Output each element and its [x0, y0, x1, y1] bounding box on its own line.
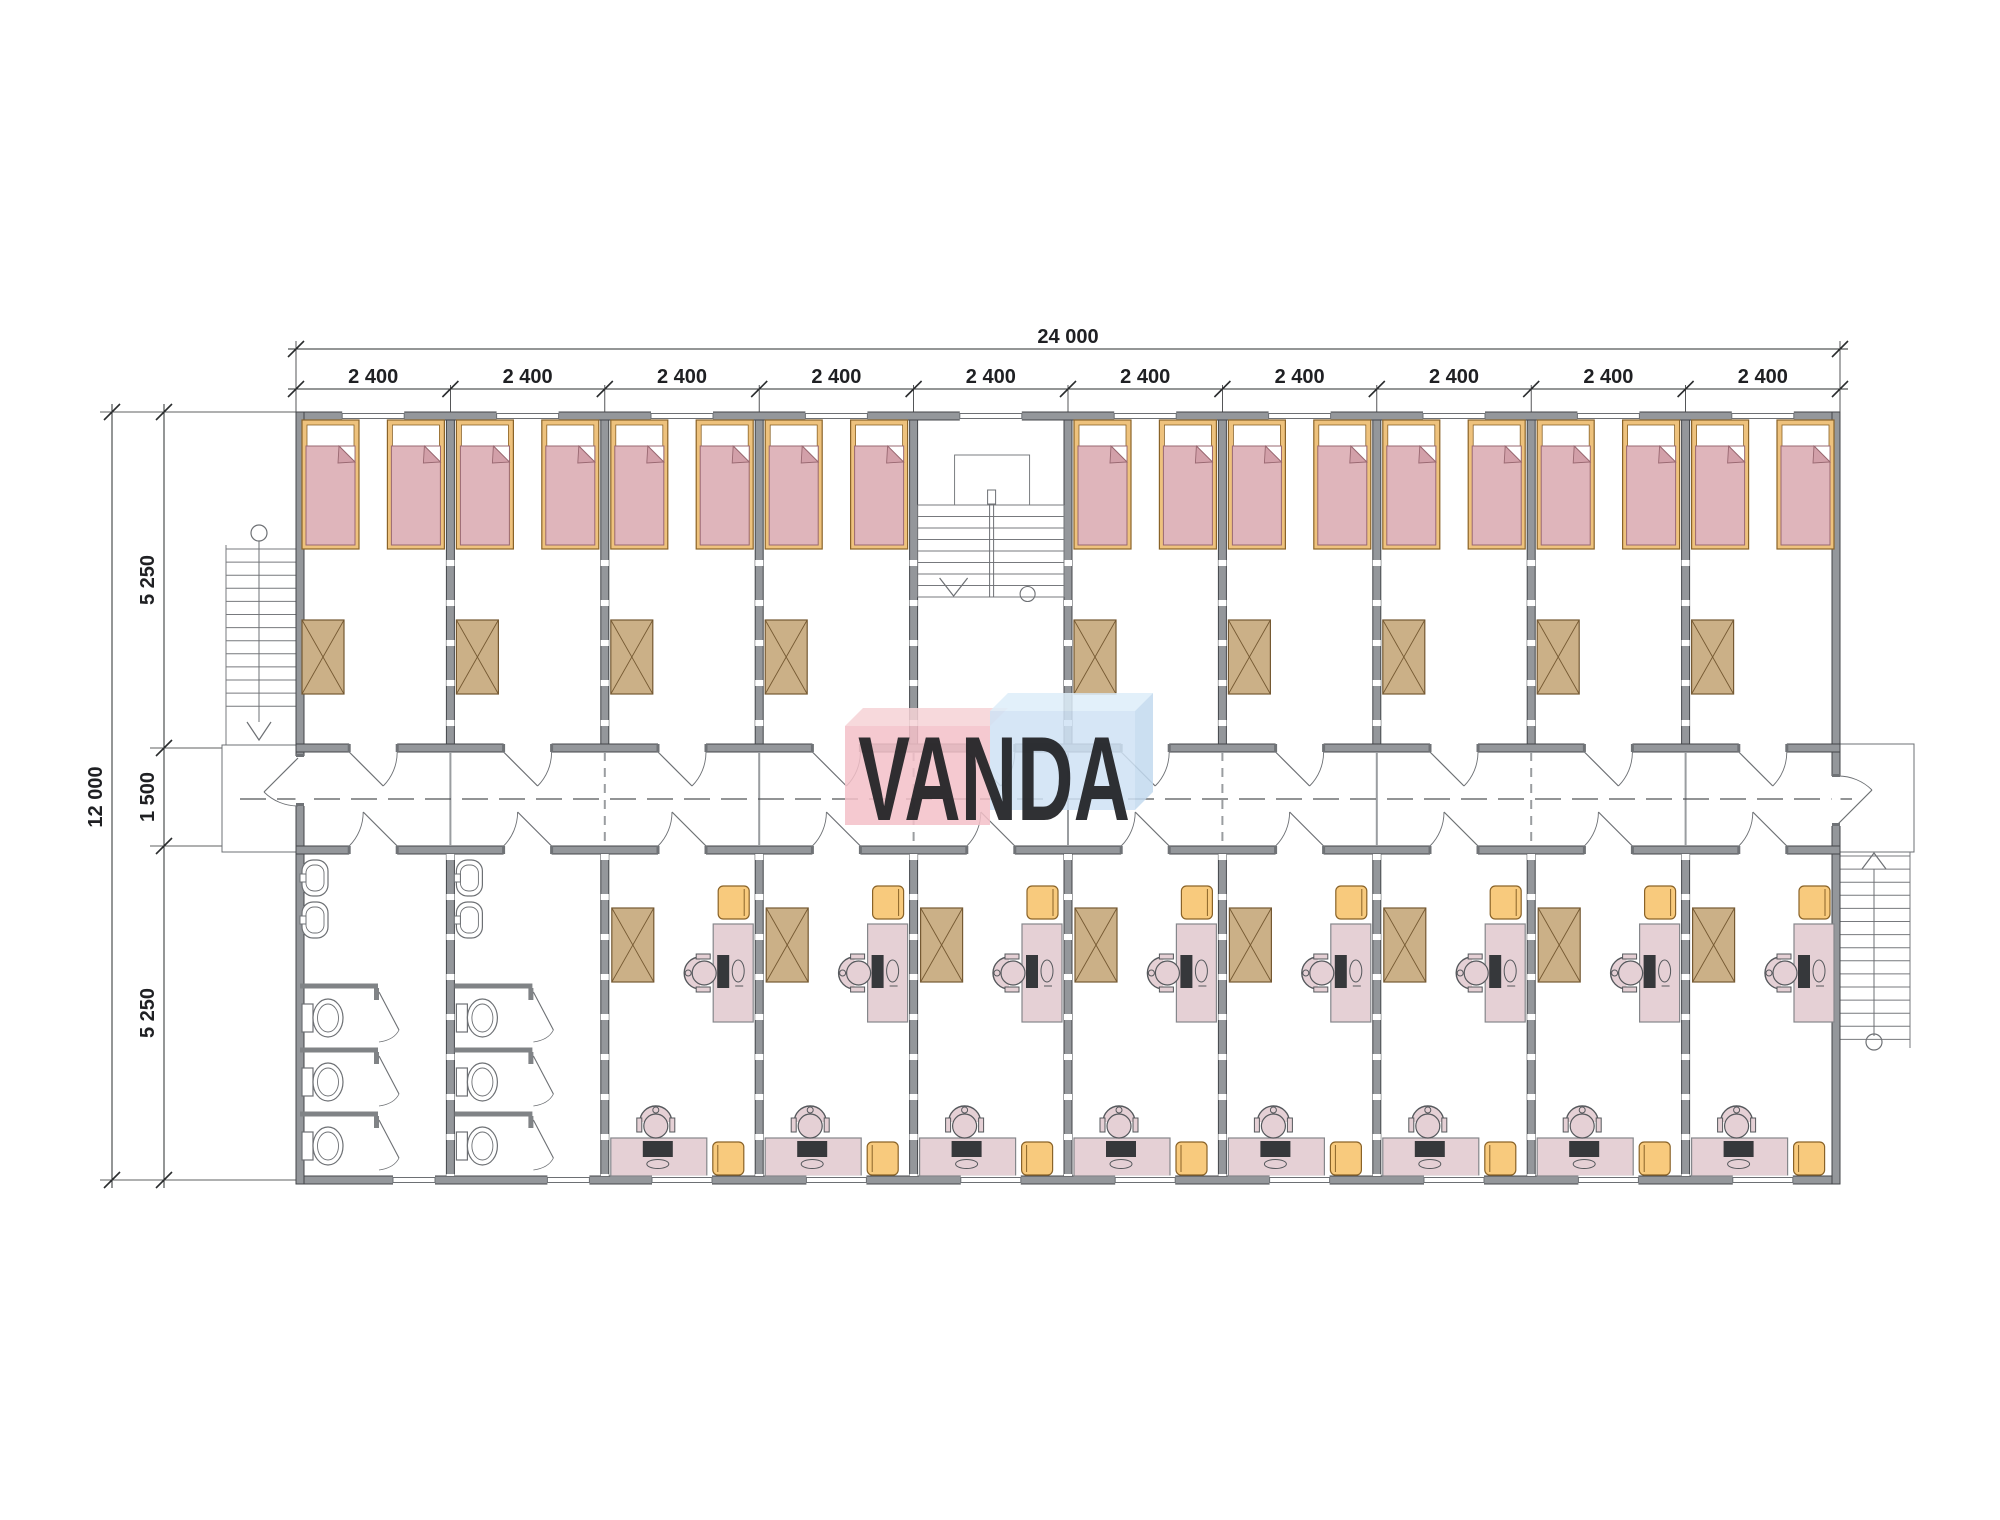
chair-armrest — [1751, 1118, 1756, 1132]
window-icon — [393, 1178, 435, 1183]
keyboard — [801, 1160, 823, 1169]
door-swing-arc — [1464, 752, 1478, 786]
door-leaf — [1739, 752, 1773, 786]
toilet-tank — [302, 1068, 313, 1096]
chair-armrest — [1133, 1118, 1138, 1132]
stair-down-arrow — [940, 578, 968, 596]
keyboard — [1350, 960, 1362, 982]
computer-monitor — [1180, 955, 1192, 988]
sink-tap — [300, 916, 306, 924]
toilet-tank — [456, 1132, 467, 1160]
stall-partition — [454, 1112, 532, 1117]
stall-door-arc — [379, 1094, 399, 1106]
stall-door-leaf — [379, 1120, 399, 1158]
chair-knob — [807, 1107, 813, 1113]
sink-tap — [454, 916, 460, 924]
computer-monitor — [952, 1141, 982, 1157]
chair-armrest — [1468, 954, 1482, 959]
chair-knob — [962, 1107, 968, 1113]
chair-armrest — [696, 954, 710, 959]
office-chair — [1619, 961, 1643, 985]
stair-up-arrow — [1862, 853, 1886, 869]
dim-module-width: 2 400 — [811, 366, 861, 388]
window-icon — [1269, 414, 1331, 419]
dim-module-width: 2 400 — [503, 366, 553, 388]
door-leaf — [1290, 812, 1324, 846]
door-leaf — [1584, 752, 1618, 786]
office-chair — [644, 1114, 668, 1138]
door-leaf — [1430, 752, 1464, 786]
dim-module-width: 2 400 — [1275, 366, 1325, 388]
logo-blue-top — [990, 693, 1153, 711]
keyboard — [1264, 1160, 1286, 1169]
chair-armrest — [1005, 954, 1019, 959]
bed-pillow — [1233, 425, 1280, 447]
floor-plan-drawing: 24 000 2 4002 4002 4002 4002 4002 4002 4… — [0, 0, 2000, 1520]
computer-monitor — [717, 955, 729, 988]
chair-knob — [653, 1107, 659, 1113]
chair-armrest — [851, 987, 865, 992]
chair-knob — [1766, 970, 1772, 976]
stall-partition — [300, 1112, 378, 1117]
door-swing-arc — [1310, 752, 1324, 786]
chair-knob — [1579, 1107, 1585, 1113]
door-leaf — [363, 812, 397, 846]
chair-armrest — [851, 954, 865, 959]
chair-knob — [1612, 970, 1618, 976]
dim-module-widths: 2 4002 4002 4002 4002 4002 4002 4002 400… — [348, 366, 1788, 388]
window-icon — [497, 414, 559, 419]
dim-height-segment-top: 5 250 — [137, 555, 159, 605]
computer-monitor — [643, 1141, 673, 1157]
window-icon — [960, 414, 1022, 419]
chair-armrest — [1254, 1118, 1259, 1132]
dim-height-segment-bottom: 5 250 — [137, 988, 159, 1038]
door-swing-arc — [658, 812, 672, 846]
keyboard — [1419, 1160, 1441, 1169]
computer-monitor — [1415, 1141, 1445, 1157]
stall-post — [528, 988, 533, 1000]
office-chair — [953, 1114, 977, 1138]
bed-pillow — [1319, 425, 1366, 447]
chair-armrest — [1442, 1118, 1447, 1132]
dim-height-segment-corridor: 1 500 — [137, 772, 159, 822]
keyboard — [1659, 960, 1671, 982]
east-landing — [1840, 744, 1914, 852]
keyboard — [647, 1160, 669, 1169]
dim-module-width: 2 400 — [966, 366, 1016, 388]
bed-pillow — [770, 425, 817, 447]
stair-start-circle — [251, 525, 267, 541]
door-swing-arc — [383, 752, 397, 786]
dim-total-width: 24 000 — [1037, 326, 1098, 348]
window-icon — [342, 414, 404, 419]
chair-armrest — [637, 1118, 642, 1132]
door-leaf — [1598, 812, 1632, 846]
door-swing-arc — [349, 812, 363, 846]
door-swing-arc — [812, 812, 826, 846]
bed-pillow — [616, 425, 663, 447]
bed-pillow — [1542, 425, 1589, 447]
bed-pillow — [1079, 425, 1126, 447]
office-chair — [1725, 1114, 1749, 1138]
stair-end-circle — [1866, 1034, 1882, 1050]
stall-partition — [300, 984, 378, 989]
handrail-cap — [988, 490, 996, 504]
stall-door-leaf — [533, 992, 553, 1030]
chair-knob — [994, 970, 1000, 976]
chair-armrest — [1159, 954, 1173, 959]
floor-plan-page: 24 000 2 4002 4002 4002 4002 4002 4002 4… — [0, 0, 2000, 1520]
keyboard — [1728, 1160, 1750, 1169]
office-chair — [1001, 961, 1025, 985]
stall-door-leaf — [379, 1056, 399, 1094]
office-chair — [692, 961, 716, 985]
door-swing-arc — [1584, 812, 1598, 846]
computer-monitor — [1798, 955, 1810, 988]
door-swing-arc — [1276, 812, 1290, 846]
chair-knob — [1425, 1107, 1431, 1113]
chair-knob — [1116, 1107, 1122, 1113]
keyboard — [887, 960, 899, 982]
dim-module-width: 2 400 — [1738, 366, 1788, 388]
toilet-tank — [456, 1004, 467, 1032]
keyboard — [1504, 960, 1516, 982]
computer-monitor — [1569, 1141, 1599, 1157]
computer-monitor — [1026, 955, 1038, 988]
office-chair — [1261, 1114, 1285, 1138]
office-chair — [1155, 961, 1179, 985]
window-icon — [961, 1178, 1021, 1183]
stall-door-arc — [533, 1158, 553, 1170]
chair-armrest — [1777, 954, 1791, 959]
window-icon — [652, 1178, 712, 1183]
stall-post — [374, 988, 379, 1000]
chair-armrest — [1314, 987, 1328, 992]
door-swing-arc — [1773, 752, 1787, 786]
chair-armrest — [670, 1118, 675, 1132]
bed-pillow — [701, 425, 748, 447]
office-chair — [1310, 961, 1334, 985]
chair-knob — [1457, 970, 1463, 976]
door-swing-arc — [1155, 752, 1169, 786]
door-swing-arc — [538, 752, 552, 786]
window-icon — [805, 414, 867, 419]
stall-post — [528, 1052, 533, 1064]
computer-monitor — [1489, 955, 1501, 988]
computer-monitor — [1724, 1141, 1754, 1157]
computer-monitor — [872, 955, 884, 988]
stall-post — [528, 1116, 533, 1128]
stall-door-arc — [379, 1158, 399, 1170]
office-chair — [1464, 961, 1488, 985]
chair-armrest — [979, 1118, 984, 1132]
computer-monitor — [1106, 1141, 1136, 1157]
door-leaf — [349, 752, 383, 786]
door-swing-arc — [1618, 752, 1632, 786]
door-leaf — [1753, 812, 1787, 846]
computer-monitor — [1644, 955, 1656, 988]
toilet-tank — [302, 1132, 313, 1160]
logo-text: VANDA — [858, 712, 1130, 846]
bed-pillow — [1164, 425, 1211, 447]
bed-pillow — [461, 425, 508, 447]
computer-monitor — [797, 1141, 827, 1157]
chair-knob — [840, 970, 846, 976]
door-leaf — [672, 812, 706, 846]
stair-end-circle — [1020, 587, 1035, 602]
stall-partition — [454, 984, 532, 989]
sink-tap — [454, 874, 460, 882]
dim-module-width: 2 400 — [348, 366, 398, 388]
chair-armrest — [791, 1118, 796, 1132]
door-leaf — [812, 752, 846, 786]
window-icon — [806, 1178, 866, 1183]
stair-down-arrow — [247, 722, 271, 740]
office-chair — [1416, 1114, 1440, 1138]
door-swing-arc — [692, 752, 706, 786]
keyboard — [1110, 1160, 1132, 1169]
stall-door-leaf — [533, 1056, 553, 1094]
bed-pillow — [1473, 425, 1520, 447]
chair-armrest — [1287, 1118, 1292, 1132]
chair-armrest — [1005, 987, 1019, 992]
chair-armrest — [824, 1118, 829, 1132]
door-leaf — [1276, 752, 1310, 786]
bed-pillow — [1628, 425, 1675, 447]
window-icon — [1577, 414, 1639, 419]
dim-module-width: 2 400 — [657, 366, 707, 388]
bed-pillow — [1388, 425, 1435, 447]
bed-pillow — [1697, 425, 1744, 447]
chair-knob — [1148, 970, 1154, 976]
stall-door-arc — [533, 1030, 553, 1042]
stall-partition — [300, 1048, 378, 1053]
chair-armrest — [1777, 987, 1791, 992]
chair-knob — [1270, 1107, 1276, 1113]
dim-module-width: 2 400 — [1429, 366, 1479, 388]
computer-monitor — [1260, 1141, 1290, 1157]
toilet-tank — [302, 1004, 313, 1032]
stall-post — [374, 1052, 379, 1064]
window-icon — [1115, 1178, 1175, 1183]
bed-pillow — [307, 425, 354, 447]
dim-total-height: 12 000 — [85, 766, 107, 827]
window-icon — [1578, 1178, 1638, 1183]
stall-partition — [454, 1048, 532, 1053]
chair-knob — [1303, 970, 1309, 976]
keyboard — [732, 960, 744, 982]
chair-armrest — [1623, 954, 1637, 959]
dim-module-width: 2 400 — [1583, 366, 1633, 388]
keyboard — [956, 1160, 978, 1169]
chair-armrest — [696, 987, 710, 992]
office-chair — [847, 961, 871, 985]
office-chair — [1107, 1114, 1131, 1138]
stall-door-leaf — [533, 1120, 553, 1158]
window-icon — [1732, 414, 1794, 419]
chair-knob — [1734, 1107, 1740, 1113]
window-icon — [1424, 1178, 1484, 1183]
window-icon — [1270, 1178, 1330, 1183]
stall-post — [374, 1116, 379, 1128]
door-leaf — [518, 812, 552, 846]
window-icon — [1114, 414, 1176, 419]
chair-armrest — [1314, 954, 1328, 959]
chair-armrest — [946, 1118, 951, 1132]
chair-knob — [685, 970, 691, 976]
chair-armrest — [1563, 1118, 1568, 1132]
keyboard — [1195, 960, 1207, 982]
stall-door-arc — [533, 1094, 553, 1106]
keyboard — [1573, 1160, 1595, 1169]
bed-pillow — [547, 425, 594, 447]
logo-blue-side — [1135, 693, 1153, 810]
door-leaf — [504, 752, 538, 786]
window-icon — [651, 414, 713, 419]
bed-pillow — [392, 425, 439, 447]
stall-door-arc — [379, 1030, 399, 1042]
chair-armrest — [1596, 1118, 1601, 1132]
keyboard — [1813, 960, 1825, 982]
door-leaf — [658, 752, 692, 786]
keyboard — [1041, 960, 1053, 982]
chair-armrest — [1468, 987, 1482, 992]
toilet-tank — [456, 1068, 467, 1096]
chair-armrest — [1409, 1118, 1414, 1132]
door-swing-arc — [1739, 812, 1753, 846]
chair-armrest — [1159, 987, 1173, 992]
window-icon — [1733, 1178, 1793, 1183]
computer-monitor — [1335, 955, 1347, 988]
stall-door-leaf — [379, 992, 399, 1030]
chair-armrest — [1100, 1118, 1105, 1132]
door-leaf — [1135, 812, 1169, 846]
dim-module-width: 2 400 — [1120, 366, 1170, 388]
door-leaf — [1444, 812, 1478, 846]
window-icon — [547, 1178, 589, 1183]
bed-pillow — [856, 425, 903, 447]
bed-pillow — [1782, 425, 1829, 447]
door-swing-arc — [1430, 812, 1444, 846]
sink-tap — [300, 874, 306, 882]
office-chair — [1773, 961, 1797, 985]
chair-armrest — [1718, 1118, 1723, 1132]
office-chair — [1570, 1114, 1594, 1138]
window-icon — [1423, 414, 1485, 419]
chair-armrest — [1623, 987, 1637, 992]
office-chair — [798, 1114, 822, 1138]
door-swing-arc — [504, 812, 518, 846]
